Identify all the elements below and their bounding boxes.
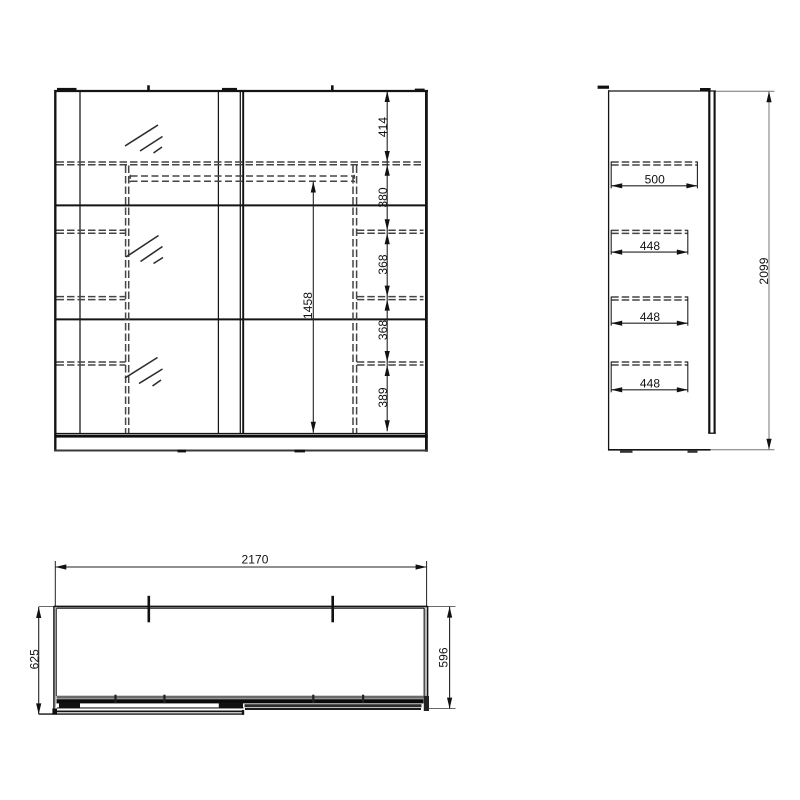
svg-text:389: 389: [376, 387, 390, 408]
svg-text:2170: 2170: [241, 553, 268, 567]
svg-text:368: 368: [376, 320, 390, 341]
svg-text:500: 500: [645, 173, 666, 187]
svg-text:414: 414: [376, 117, 390, 138]
svg-text:2099: 2099: [757, 257, 771, 284]
svg-text:1458: 1458: [301, 292, 315, 319]
svg-text:625: 625: [27, 649, 41, 670]
svg-text:380: 380: [376, 187, 390, 208]
svg-text:448: 448: [640, 239, 661, 253]
svg-text:448: 448: [640, 310, 661, 324]
svg-text:448: 448: [640, 377, 661, 391]
svg-text:596: 596: [437, 647, 451, 668]
svg-text:368: 368: [376, 254, 390, 275]
